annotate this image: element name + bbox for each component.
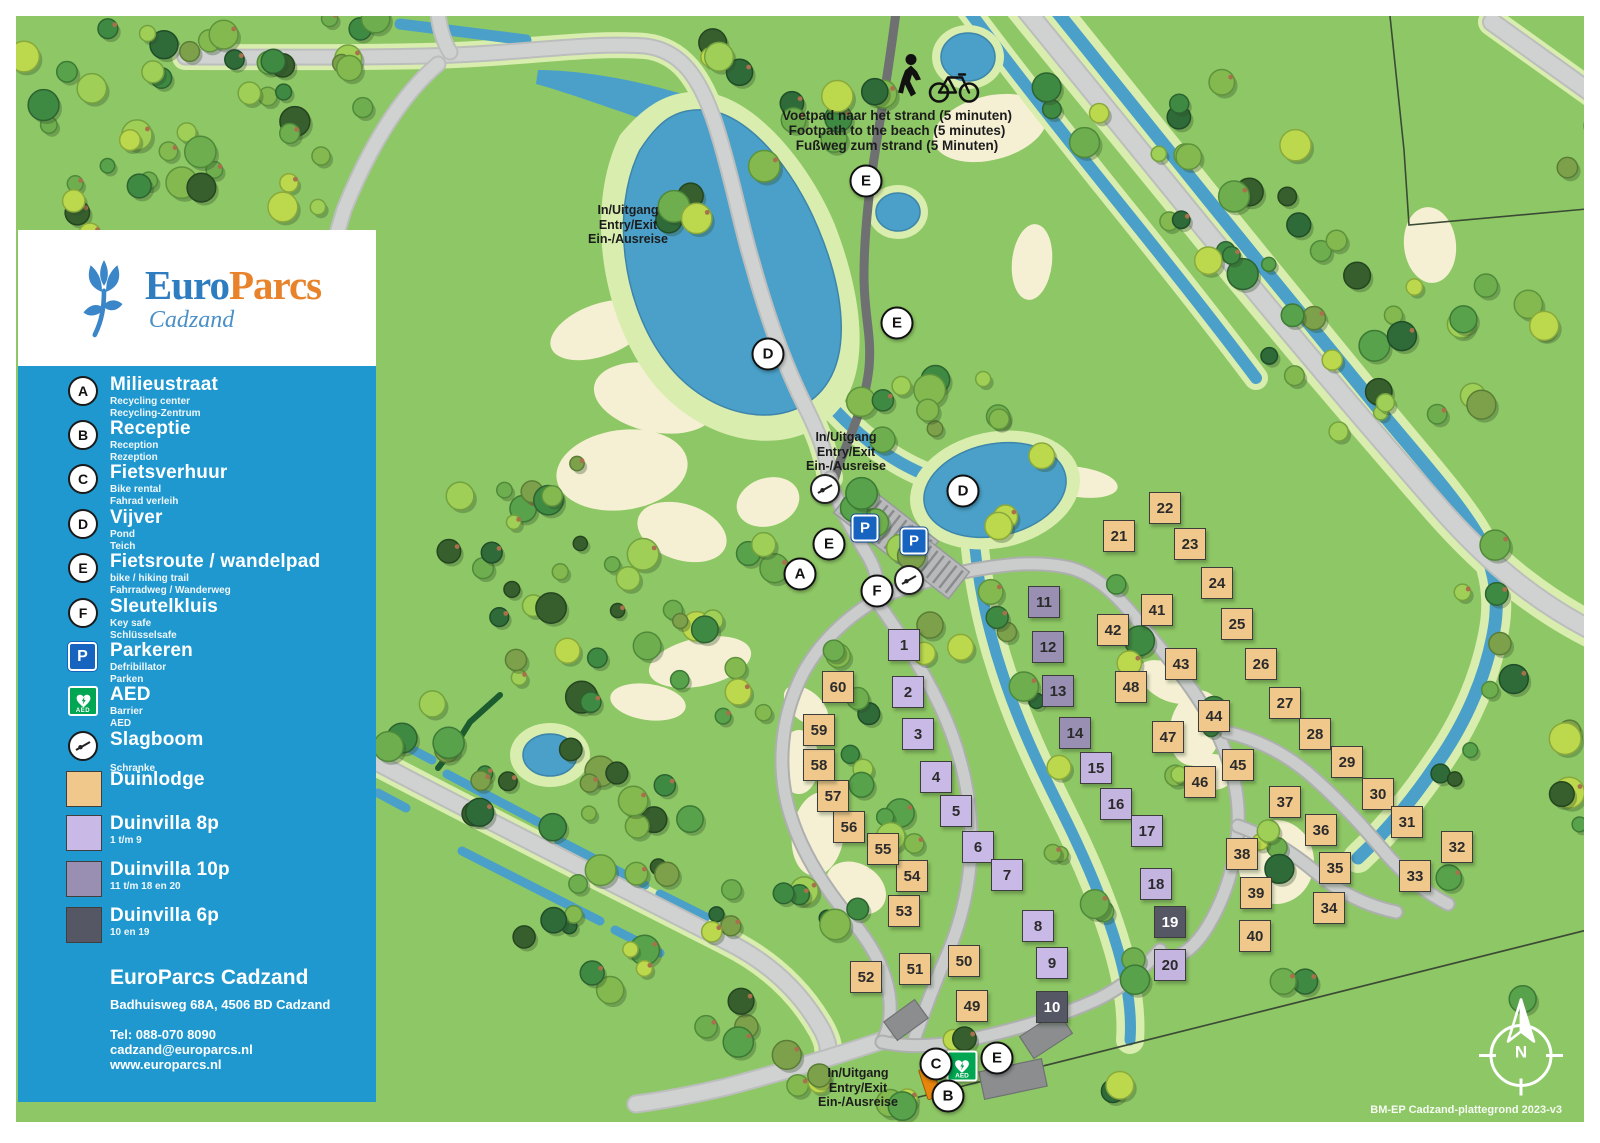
legend-text-duinvilla-10p: Duinvilla 10p11 t/m 18 en 20 <box>110 859 370 893</box>
legend-icon-slagboom <box>68 731 98 761</box>
plot-52: 52 <box>850 961 882 993</box>
plot-6: 6 <box>962 831 994 863</box>
map-caption: BM-EP Cadzand-plattegrond 2023-v3 <box>1370 1104 1562 1116</box>
footpath-annotation: Voetpad naar het strand (5 minuten)Footp… <box>782 108 1012 153</box>
letter-c-icon: C <box>68 464 98 494</box>
swatch-v10-icon <box>66 861 102 897</box>
legend-sublabel: 11 t/m 18 en 20 <box>110 881 370 893</box>
marker-e: E <box>813 528 846 561</box>
park-map-page: 1234567891011121314151617181920212223242… <box>0 0 1600 1143</box>
entry-exit-annotation-line: In/Uitgang <box>588 203 668 218</box>
legend-sublabel <box>110 751 370 763</box>
slagboom-icon <box>894 565 924 595</box>
aed-icon: AED <box>68 686 98 716</box>
plot-33: 33 <box>1399 860 1431 892</box>
plot-40: 40 <box>1239 920 1271 952</box>
bicycle-icon <box>928 70 980 109</box>
marker-e: E <box>881 307 914 340</box>
legend-icon-parkeren: P <box>68 642 97 671</box>
legend-sublabel: 10 en 19 <box>110 927 370 939</box>
compass: N <box>1469 992 1573 1113</box>
legend-sublabel: Defribillator <box>110 662 370 674</box>
plot-16: 16 <box>1100 788 1132 820</box>
plot-19: 19 <box>1154 906 1186 938</box>
plot-53: 53 <box>888 895 920 927</box>
entry-exit-annotation: In/UitgangEntry/ExitEin-/Ausreise <box>806 430 886 474</box>
plot-35: 35 <box>1319 852 1351 884</box>
legend-text-duinvilla-6p: Duinvilla 6p10 en 19 <box>110 905 370 939</box>
legend-panel: AMilieustraatRecycling centerRecycling-Z… <box>18 366 376 1102</box>
slagboom-icon <box>810 474 840 504</box>
legend-text-fietsverhuur: FietsverhuurBike rentalFahrad verleih <box>110 462 370 508</box>
plot-14: 14 <box>1059 717 1091 749</box>
legend-icon-duinvilla-8p <box>68 815 102 851</box>
parking-icon: P <box>68 642 97 671</box>
plot-2: 2 <box>892 676 924 708</box>
compass-n-label: N <box>1515 1043 1527 1062</box>
plot-11: 11 <box>1028 586 1060 618</box>
contact-web: www.europarcs.nl <box>110 1057 370 1072</box>
plot-3: 3 <box>902 718 934 750</box>
plot-43: 43 <box>1165 648 1197 680</box>
footpath-annotation-line: Voetpad naar het strand (5 minuten) <box>782 108 1012 123</box>
swatch-v8-icon <box>66 815 102 851</box>
contact-address: Badhuisweg 68A, 4506 BD Cadzand <box>110 997 370 1012</box>
aed-icon-label: AED <box>76 708 90 714</box>
plot-4: 4 <box>920 761 952 793</box>
legend-label: Sleutelkluis <box>110 596 370 618</box>
legend-label: Milieustraat <box>110 374 370 396</box>
entry-exit-annotation-line: Entry/Exit <box>588 218 668 233</box>
legend-text-aed: AEDBarrierAED <box>110 684 370 730</box>
marker-c: C <box>920 1048 953 1081</box>
entry-exit-annotation-line: In/Uitgang <box>818 1066 898 1081</box>
plot-42: 42 <box>1097 614 1129 646</box>
plot-21: 21 <box>1103 520 1135 552</box>
letter-a-icon: A <box>68 376 98 406</box>
entry-exit-annotation: In/UitgangEntry/ExitEin-/Ausreise <box>818 1066 898 1110</box>
legend-sublabel: Barrier <box>110 706 370 718</box>
plot-13: 13 <box>1042 675 1074 707</box>
marker-e: E <box>981 1042 1014 1075</box>
aed-sign-label: AED <box>955 1073 969 1080</box>
plot-37: 37 <box>1269 786 1301 818</box>
plot-56: 56 <box>833 811 865 843</box>
entry-exit-annotation-line: Ein-/Ausreise <box>806 459 886 474</box>
legend-sublabel: Bike rental <box>110 484 370 496</box>
plot-10: 10 <box>1036 991 1068 1023</box>
plot-25: 25 <box>1221 608 1253 640</box>
marker-a: A <box>784 558 817 591</box>
marker-e: E <box>850 165 883 198</box>
legend-label: AED <box>110 684 370 706</box>
contact-block: EuroParcs Cadzand Badhuisweg 68A, 4506 B… <box>110 966 370 1072</box>
entry-exit-annotation-line: Ein-/Ausreise <box>818 1095 898 1110</box>
plot-57: 57 <box>817 780 849 812</box>
marker-d: D <box>947 475 980 508</box>
plot-27: 27 <box>1269 687 1301 719</box>
plot-15: 15 <box>1080 752 1112 784</box>
legend-icon-duinlodge <box>68 771 102 807</box>
brand-wordmark: EuroParcs Cadzand <box>145 265 321 332</box>
plot-47: 47 <box>1152 721 1184 753</box>
plot-18: 18 <box>1140 868 1172 900</box>
plot-41: 41 <box>1141 594 1173 626</box>
plot-24: 24 <box>1201 567 1233 599</box>
footpath-annotation-line: Fußweg zum strand (5 Minuten) <box>782 138 1012 153</box>
plot-48: 48 <box>1115 671 1147 703</box>
legend-sublabel: bike / hiking trail <box>110 573 370 585</box>
plot-51: 51 <box>899 953 931 985</box>
plot-1: 1 <box>888 629 920 661</box>
plot-46: 46 <box>1184 766 1216 798</box>
plot-60: 60 <box>822 671 854 703</box>
plot-23: 23 <box>1174 528 1206 560</box>
legend-sublabel: Recycling center <box>110 396 370 408</box>
legend-text-vijver: VijverPondTeich <box>110 507 370 553</box>
plot-49: 49 <box>956 990 988 1022</box>
plot-9: 9 <box>1036 947 1068 979</box>
plot-54: 54 <box>896 860 928 892</box>
letter-d-icon: D <box>68 509 98 539</box>
entry-exit-annotation-line: In/Uitgang <box>806 430 886 445</box>
entry-exit-annotation: In/UitgangEntry/ExitEin-/Ausreise <box>588 203 668 247</box>
legend-sublabel: Key safe <box>110 618 370 630</box>
letter-f-icon: F <box>68 598 98 628</box>
legend-icon-sleutelkluis: F <box>68 598 98 628</box>
legend-label: Parkeren <box>110 640 370 662</box>
plot-38: 38 <box>1226 838 1258 870</box>
legend-icon-fietsroute-wandelpad: E <box>68 553 98 583</box>
sidebar-logo: EuroParcs Cadzand <box>18 230 376 366</box>
plot-32: 32 <box>1441 831 1473 863</box>
plot-58: 58 <box>803 749 835 781</box>
legend-text-parkeren: ParkerenDefribillatorParken <box>110 640 370 686</box>
marker-f: F <box>861 575 894 608</box>
legend-icon-milieustraat: A <box>68 376 98 406</box>
legend-label: Duinvilla 10p <box>110 859 370 881</box>
parking-sign: P <box>852 515 879 542</box>
pedestrian-icon <box>895 54 927 105</box>
plot-7: 7 <box>991 859 1023 891</box>
plot-44: 44 <box>1198 700 1230 732</box>
legend-icon-aed: AED <box>68 686 98 716</box>
swatch-v6-icon <box>66 907 102 943</box>
legend-label: Receptie <box>110 418 370 440</box>
plot-28: 28 <box>1299 718 1331 750</box>
plot-12: 12 <box>1032 631 1064 663</box>
tulip-logo-icon <box>73 256 135 340</box>
plot-59: 59 <box>803 714 835 746</box>
brand-location: Cadzand <box>149 308 321 332</box>
letter-e-icon: E <box>68 553 98 583</box>
legend-label: Slagboom <box>110 729 370 751</box>
legend-text-milieustraat: MilieustraatRecycling centerRecycling-Ze… <box>110 374 370 420</box>
parking-sign: P <box>901 528 928 555</box>
plot-36: 36 <box>1305 814 1337 846</box>
entry-exit-annotation-line: Entry/Exit <box>806 445 886 460</box>
legend-icon-duinvilla-10p <box>68 861 102 897</box>
footpath-annotation-line: Footpath to the beach (5 minutes) <box>782 123 1012 138</box>
plot-17: 17 <box>1131 815 1163 847</box>
brand-euro: Euro <box>145 262 229 308</box>
brand-parcs: Parcs <box>229 262 321 308</box>
legend-label: Duinvilla 6p <box>110 905 370 927</box>
legend-text-sleutelkluis: SleutelkluisKey safeSchlüsselsafe <box>110 596 370 642</box>
swatch-lodge-icon <box>66 771 102 807</box>
legend-label: Duinlodge <box>110 769 370 791</box>
legend-label: Duinvilla 8p <box>110 813 370 835</box>
legend-text-duinlodge: Duinlodge <box>110 769 370 791</box>
legend-icon-fietsverhuur: C <box>68 464 98 494</box>
legend-sublabel: 1 t/m 9 <box>110 835 370 847</box>
contact-tel: Tel: 088-070 8090 <box>110 1027 370 1042</box>
contact-name: EuroParcs Cadzand <box>110 966 370 990</box>
plot-39: 39 <box>1240 877 1272 909</box>
plot-30: 30 <box>1362 778 1394 810</box>
marker-d: D <box>752 338 785 371</box>
plot-31: 31 <box>1391 806 1423 838</box>
barrier-icon <box>68 731 98 761</box>
marker-b: B <box>932 1080 965 1113</box>
plot-55: 55 <box>867 833 899 865</box>
legend-label: Fietsverhuur <box>110 462 370 484</box>
letter-b-icon: B <box>68 420 98 450</box>
legend-text-receptie: ReceptieReceptionRezeption <box>110 418 370 464</box>
legend-icon-duinvilla-6p <box>68 907 102 943</box>
entry-exit-annotation-line: Entry/Exit <box>818 1081 898 1096</box>
contact-email: cadzand@europarcs.nl <box>110 1042 370 1057</box>
plot-45: 45 <box>1222 749 1254 781</box>
legend-sublabel: Reception <box>110 440 370 452</box>
legend-sublabel: Pond <box>110 529 370 541</box>
legend-label: Vijver <box>110 507 370 529</box>
legend-label: Fietsroute / wandelpad <box>110 551 370 573</box>
plot-29: 29 <box>1331 746 1363 778</box>
legend-text-fietsroute-wandelpad: Fietsroute / wandelpadbike / hiking trai… <box>110 551 370 597</box>
legend-icon-vijver: D <box>68 509 98 539</box>
plot-34: 34 <box>1313 892 1345 924</box>
plot-8: 8 <box>1022 910 1054 942</box>
plot-50: 50 <box>948 945 980 977</box>
legend-icon-receptie: B <box>68 420 98 450</box>
legend-text-duinvilla-8p: Duinvilla 8p1 t/m 9 <box>110 813 370 847</box>
plot-20: 20 <box>1154 949 1186 981</box>
plot-22: 22 <box>1149 492 1181 524</box>
plot-26: 26 <box>1245 648 1277 680</box>
entry-exit-annotation-line: Ein-/Ausreise <box>588 232 668 247</box>
plot-5: 5 <box>940 795 972 827</box>
